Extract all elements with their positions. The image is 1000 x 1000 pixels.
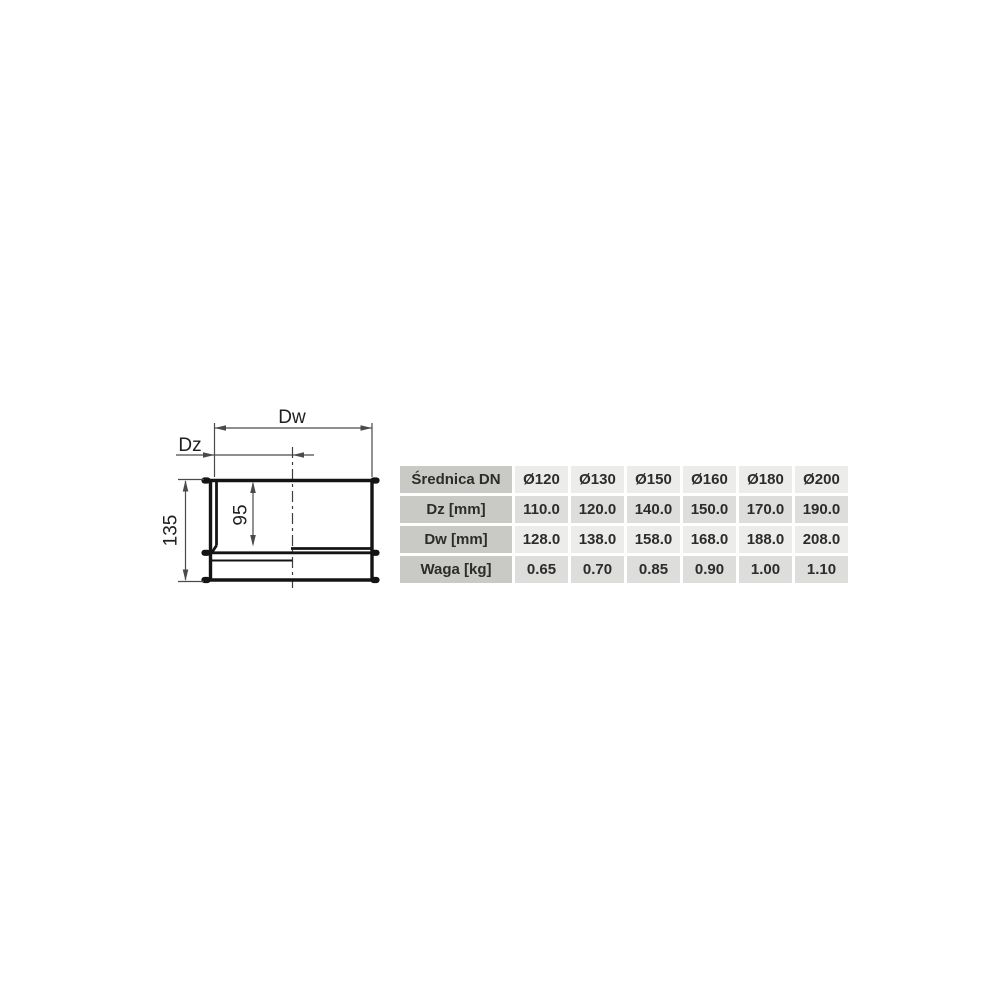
value-cell: 1.10	[795, 556, 848, 583]
col-header-cell: Ø120	[515, 466, 568, 493]
dim-label-dz: Dz	[178, 435, 201, 456]
row-label-cell: Dw [mm]	[400, 526, 512, 553]
corner-header-cell: Średnica DN	[400, 466, 512, 493]
col-header-cell: Ø130	[571, 466, 624, 493]
col-header-cell: Ø160	[683, 466, 736, 493]
dim-label-135: 135	[161, 515, 182, 547]
dim-95: 95	[231, 482, 256, 547]
value-cell: 188.0	[739, 526, 792, 553]
dim-dz: Dz	[176, 435, 314, 458]
value-cell: 110.0	[515, 496, 568, 523]
dim-label-95: 95	[231, 504, 252, 525]
value-cell: 120.0	[571, 496, 624, 523]
row-label-cell: Waga [kg]	[400, 556, 512, 583]
table-row-dw: Dw [mm] 128.0 138.0 158.0 168.0 188.0 20…	[400, 526, 848, 553]
value-cell: 168.0	[683, 526, 736, 553]
spec-table: Średnica DN Ø120 Ø130 Ø150 Ø160 Ø180 Ø20…	[397, 463, 851, 586]
value-cell: 158.0	[627, 526, 680, 553]
dim-label-dw: Dw	[278, 407, 306, 428]
spec-table-container: Średnica DN Ø120 Ø130 Ø150 Ø160 Ø180 Ø20…	[397, 463, 851, 586]
table-row-waga: Waga [kg] 0.65 0.70 0.85 0.90 1.00 1.10	[400, 556, 848, 583]
value-cell: 150.0	[683, 496, 736, 523]
col-header-cell: Ø200	[795, 466, 848, 493]
table-header-row: Średnica DN Ø120 Ø130 Ø150 Ø160 Ø180 Ø20…	[400, 466, 848, 493]
value-cell: 1.00	[739, 556, 792, 583]
value-cell: 138.0	[571, 526, 624, 553]
dim-dw: Dw	[215, 407, 373, 477]
col-header-cell: Ø150	[627, 466, 680, 493]
value-cell: 170.0	[739, 496, 792, 523]
dim-135: 135	[161, 480, 205, 582]
value-cell: 0.65	[515, 556, 568, 583]
value-cell: 128.0	[515, 526, 568, 553]
value-cell: 140.0	[627, 496, 680, 523]
value-cell: 0.90	[683, 556, 736, 583]
value-cell: 208.0	[795, 526, 848, 553]
page: Dw Dz	[0, 0, 1000, 1000]
value-cell: 190.0	[795, 496, 848, 523]
value-cell: 0.85	[627, 556, 680, 583]
col-header-cell: Ø180	[739, 466, 792, 493]
row-label-cell: Dz [mm]	[400, 496, 512, 523]
pipe-body	[203, 479, 378, 580]
value-cell: 0.70	[571, 556, 624, 583]
table-row-dz: Dz [mm] 110.0 120.0 140.0 150.0 170.0 19…	[400, 496, 848, 523]
technical-drawing: Dw Dz	[150, 395, 395, 595]
